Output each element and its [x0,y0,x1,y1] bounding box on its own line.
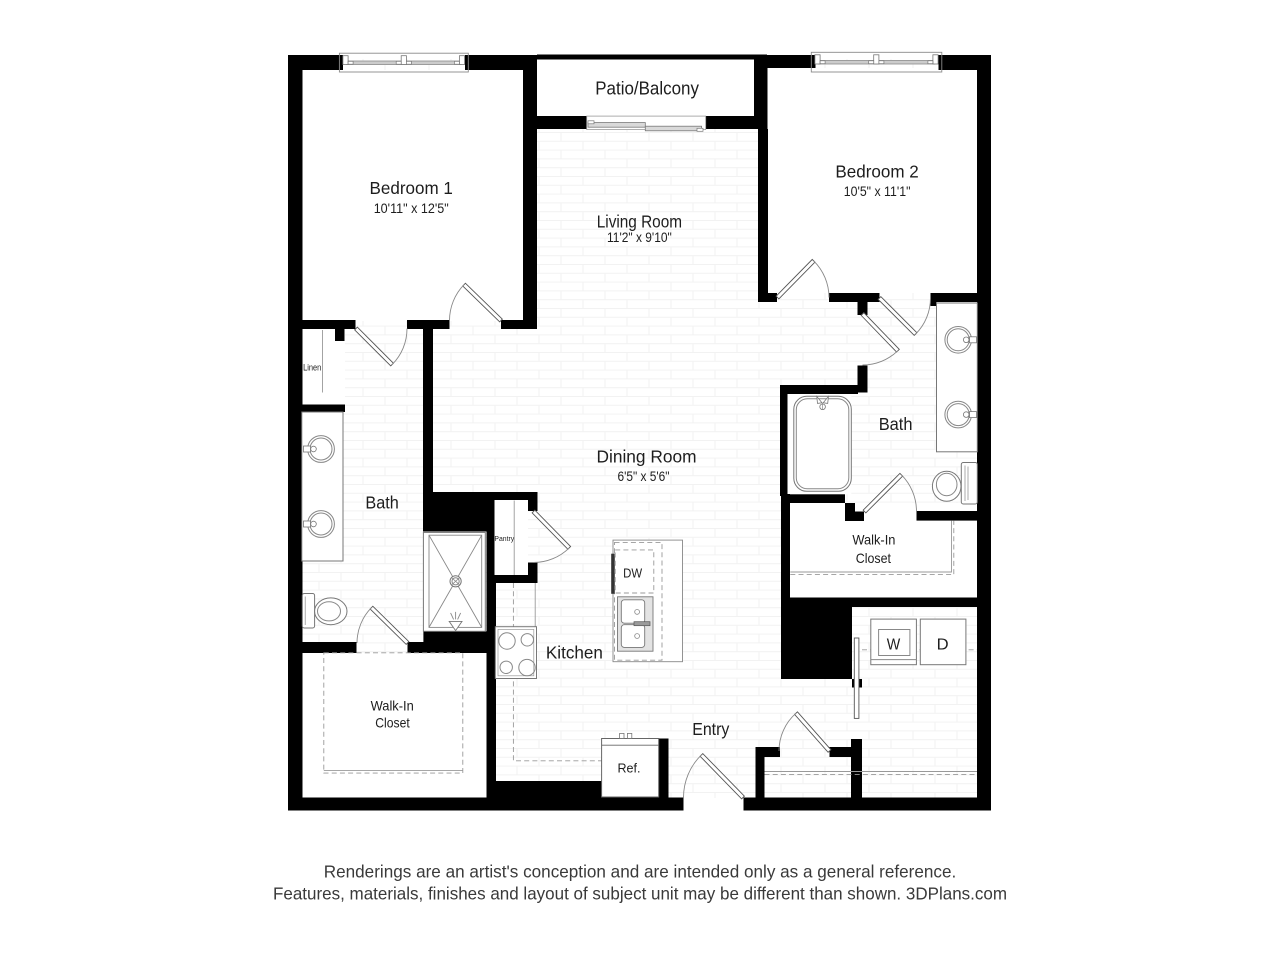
svg-text:Living Room: Living Room [597,211,682,231]
svg-text:Ref.: Ref. [618,762,641,776]
svg-text:Entry: Entry [692,719,729,739]
svg-text:D: D [937,636,949,653]
svg-text:Closet: Closet [375,715,410,731]
svg-text:Dining Room: Dining Room [597,446,697,466]
svg-text:6'5" x 5'6": 6'5" x 5'6" [617,469,669,484]
svg-text:Bath: Bath [365,492,398,512]
svg-text:DW: DW [623,566,643,581]
svg-text:10'11" x 12'5": 10'11" x 12'5" [374,201,449,216]
svg-text:Closet: Closet [856,550,891,566]
svg-text:Kitchen: Kitchen [546,643,603,663]
svg-text:Linen: Linen [303,363,321,374]
svg-text:Features, materials, finishes: Features, materials, finishes and layout… [273,884,1007,904]
svg-text:Bedroom 1: Bedroom 1 [370,178,453,198]
svg-text:Bath: Bath [879,414,913,434]
svg-text:Pantry: Pantry [494,536,514,543]
svg-text:Walk-In: Walk-In [371,698,414,714]
svg-text:W: W [887,636,901,653]
svg-text:Patio/Balcony: Patio/Balcony [595,78,699,98]
svg-text:Renderings are an artist's con: Renderings are an artist's conception an… [324,862,957,882]
svg-text:Walk-In: Walk-In [852,531,895,547]
svg-text:Bedroom 2: Bedroom 2 [835,162,918,182]
svg-text:11'2" x 9'10": 11'2" x 9'10" [607,230,672,245]
svg-text:10'5" x 11'1": 10'5" x 11'1" [844,184,911,199]
